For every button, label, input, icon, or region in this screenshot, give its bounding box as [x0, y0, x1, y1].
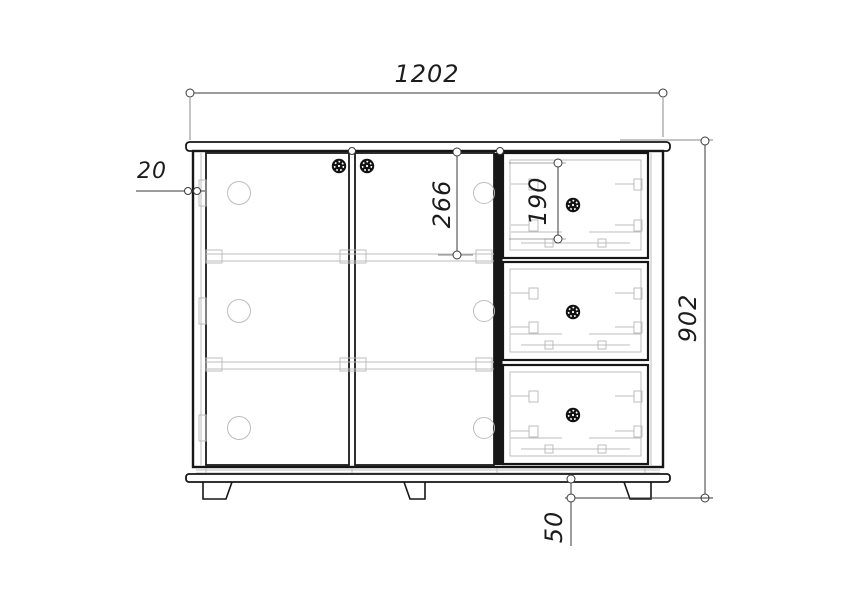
- dimension-endpoint-circle: [453, 148, 461, 156]
- dimension-endpoint-circle: [186, 89, 194, 97]
- dimension-label-drawer-front-height: 190: [525, 161, 551, 241]
- dimension-endpoint-circle: [194, 188, 201, 195]
- door-left-knob: [332, 159, 346, 173]
- dimension-thickness-20: [136, 188, 205, 195]
- dimension-label-top-section-height: 266: [429, 164, 455, 244]
- dimension-endpoint-circle: [554, 159, 562, 167]
- dimension-endpoint-circle: [497, 148, 504, 155]
- dimension-endpoint-circle: [554, 235, 562, 243]
- dimension-endpoint-circle: [567, 475, 575, 483]
- door-right: [355, 153, 494, 465]
- door-right-knob: [360, 159, 374, 173]
- cabinet-linework: [0, 0, 856, 611]
- dimension-endpoint-circle: [349, 148, 356, 155]
- drawer-1-knob: [566, 198, 580, 212]
- dimension-endpoint-circle: [567, 494, 575, 502]
- dimension-label-overall-height: 902: [675, 278, 701, 358]
- dimension-endpoint-circle: [701, 137, 709, 145]
- vertical-divider-panel: [495, 153, 503, 465]
- dimension-endpoint-circle: [185, 188, 192, 195]
- dimension-width-1202: [186, 89, 667, 140]
- feet: [203, 482, 651, 499]
- drawer-3-knob: [566, 408, 580, 422]
- drawing-canvas: 1202 20 266 190 902 50: [0, 0, 856, 611]
- dimension-label-panel-thickness: 20: [130, 159, 174, 185]
- plinth: [186, 468, 670, 482]
- foot-left: [203, 482, 232, 499]
- foot-right: [624, 482, 651, 499]
- dimension-endpoint-circle: [659, 89, 667, 97]
- drawer-2-knob: [566, 305, 580, 319]
- dimension-label-overall-width: 1202: [347, 61, 507, 87]
- dimension-endpoint-circle: [453, 251, 461, 259]
- foot-middle: [404, 482, 425, 499]
- dimension-label-leg-height: 50: [541, 487, 567, 567]
- cabinet-top-panel: [186, 142, 670, 151]
- dimension-leg-50: [565, 475, 713, 546]
